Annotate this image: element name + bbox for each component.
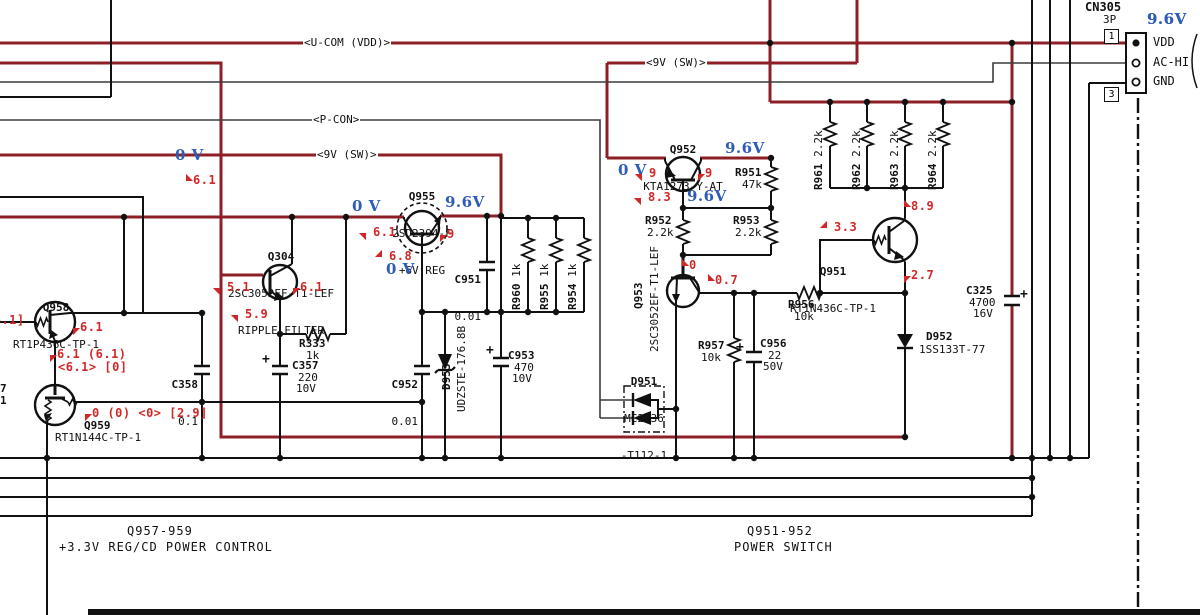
r955-label: R955 1k (539, 264, 551, 310)
c357-voltage: 10V (296, 383, 316, 395)
r964-label: R964 2.2k (927, 130, 939, 190)
r953-value: 2.2k (735, 227, 762, 239)
c951-label: C951 0.01 (427, 249, 481, 335)
voltage-annotation-red: 3.3 (834, 220, 857, 234)
voltage-annotation-blue: 9.6V (1147, 10, 1187, 28)
q959-part: RT1N144C-TP-1 (55, 432, 141, 444)
voltage-annotation-red: 6.1 (6.1) (57, 347, 127, 361)
c952-label: C952 0.01 (364, 354, 418, 440)
connector-pin2-label: AC-HI (1153, 56, 1189, 69)
voltage-annotation-red: 9 (649, 166, 657, 180)
d952-part: 1SS133T-77 (919, 344, 985, 356)
d952-ref: D952 (926, 331, 953, 343)
net-label-ucom-vdd: <U-COM (VDD)> (303, 36, 391, 49)
connector-type: 3P (1103, 14, 1116, 26)
schematic-wires (0, 0, 1200, 615)
q953-part: 2SC3052EF-T1-LEF (649, 246, 661, 352)
net-label-pcon: <P-CON> (312, 113, 360, 126)
voltage-annotation-red: 6.1 (80, 320, 103, 334)
section-right-refs: Q951-952 (747, 524, 813, 538)
cable-curve (1192, 34, 1197, 88)
black-wires (0, 0, 1126, 615)
section-right-title: POWER SWITCH (734, 540, 833, 554)
c953-plus-sign: + (486, 343, 494, 358)
voltage-annotation-red: 8.3 (648, 190, 671, 204)
voltage-annotation-red: 0 (0) <0> [2.9] (92, 406, 208, 420)
d953-part: UDZSTE-176.8B (456, 326, 468, 412)
voltage-annotation-blue: 0 V (352, 197, 381, 215)
d951-label: D951 MC2836 -T112-1 (612, 351, 676, 474)
r951-value: 47k (742, 179, 762, 191)
c357-plus-sign: + (262, 352, 270, 367)
clipped-label: 1 (0, 394, 7, 407)
voltage-annotation-red: 6.8 (389, 249, 412, 263)
voltage-annotation-red: 0.7 (715, 273, 738, 287)
r954-label: R954 1k (567, 264, 579, 310)
r956-value: 10k (794, 311, 814, 323)
q951-label: Q951 RT1N436C-TP-1 (765, 241, 901, 327)
d953-ref: D953 (441, 364, 453, 391)
q953-ref: Q953 (633, 283, 645, 310)
net-label-9v-sw-1: <9V (SW)> (316, 148, 378, 161)
net-label-9v-sw-2: <9V (SW)> (645, 56, 707, 69)
c956-voltage: 50V (763, 361, 783, 373)
voltage-annotation-red: 5.1 (227, 280, 250, 294)
voltage-annotation-red: 8.9 (911, 199, 934, 213)
voltage-annotation-blue: 9.6V (445, 193, 485, 211)
connector-symbol (1126, 33, 1197, 615)
voltage-annotation-red: 2.7 (911, 268, 934, 282)
voltage-annotation-blue: 9.6V (725, 139, 765, 157)
connector-pin1-label: VDD (1153, 36, 1175, 49)
r963-label: R963 2.2k (889, 130, 901, 190)
connector-pin3-number: 3 (1104, 87, 1119, 102)
r957-value: 10k (701, 352, 721, 364)
r952-value: 2.2k (647, 227, 674, 239)
c325-voltage: 16V (973, 308, 993, 320)
r961-label: R961 2.2k (813, 130, 825, 190)
r962-label: R962 2.2k (851, 130, 863, 190)
voltage-annotation-red: 9 (447, 227, 455, 241)
schematic-page: <U-COM (VDD)> <P-CON> <9V (SW)> <9V (SW)… (0, 0, 1200, 615)
voltage-annotation-red: 6.1 (193, 173, 216, 187)
voltage-annotation-red: 9 (705, 166, 713, 180)
connector-pin3-label: GND (1153, 75, 1175, 88)
section-left-refs: Q957-959 (127, 524, 193, 538)
voltage-annotation-blue: 0 V (175, 146, 204, 164)
r960-label: R960 1k (511, 264, 523, 310)
bottom-section-divider (88, 609, 1200, 615)
voltage-annotation-red: 6.1 (373, 225, 396, 239)
voltage-annotation-red: 6.1 (300, 280, 323, 294)
voltage-annotation-red: 0 (689, 258, 697, 272)
c325-plus-sign: + (1020, 287, 1028, 302)
voltage-annotation-red: 5.9 (245, 307, 268, 321)
r333-value: 1k (306, 350, 319, 362)
voltage-annotation-blue: 9.6V (687, 187, 727, 205)
c956-plus-sign: + (736, 340, 744, 355)
connector-pin1-number: 1 (1104, 29, 1119, 44)
voltage-annotation-red: <6.1> [0] (58, 360, 128, 374)
c953-voltage: 10V (512, 373, 532, 385)
section-left-title: +3.3V REG/CD POWER CONTROL (59, 540, 273, 554)
voltage-annotation-red: [6.1] (0, 313, 25, 327)
c358-label: C358 0.1 (144, 354, 198, 440)
